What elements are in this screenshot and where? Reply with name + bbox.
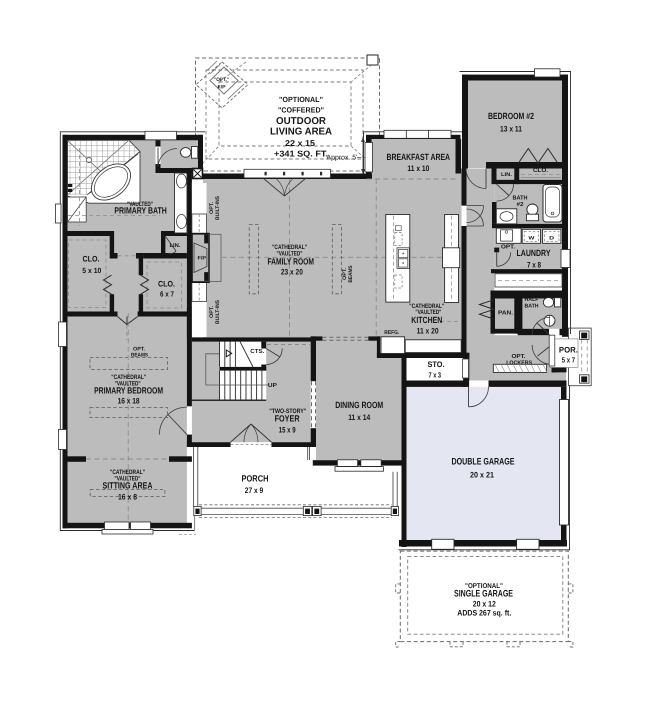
svg-text:DINING ROOM: DINING ROOM [335, 400, 383, 410]
svg-text:22 x 15: 22 x 15 [285, 138, 315, 148]
svg-text:DOUBLE GARAGE: DOUBLE GARAGE [452, 457, 515, 468]
svg-text:LIVING AREA: LIVING AREA [270, 127, 332, 138]
svg-text:11 x 20: 11 x 20 [417, 326, 439, 335]
svg-text:BUILT-INS: BUILT-INS [215, 299, 221, 324]
svg-text:REFG.: REFG. [384, 330, 399, 336]
svg-text:STO.: STO. [428, 360, 445, 369]
svg-text:OPT.: OPT. [133, 347, 146, 353]
svg-text:SINGLE GARAGE: SINGLE GARAGE [454, 589, 513, 600]
svg-text:11 x 10: 11 x 10 [407, 164, 429, 173]
svg-text:5 x 7: 5 x 7 [562, 355, 576, 364]
svg-text:LIN.: LIN. [170, 243, 181, 249]
svg-text:BUILT-INS: BUILT-INS [215, 195, 221, 220]
svg-text:5 x 10: 5 x 10 [82, 266, 101, 275]
svg-text:7 x 8: 7 x 8 [527, 260, 541, 269]
svg-text:HALF: HALF [525, 297, 540, 303]
svg-text:ADDS 267 sq. ft.: ADDS 267 sq. ft. [457, 608, 511, 617]
svg-text:BATH: BATH [513, 196, 528, 202]
svg-text:13 x 11: 13 x 11 [500, 125, 522, 134]
svg-text:23 x 20: 23 x 20 [281, 268, 303, 277]
svg-text:SITTING AREA: SITTING AREA [103, 481, 153, 491]
svg-text:11 x 14: 11 x 14 [348, 413, 370, 422]
svg-text:D: D [549, 236, 555, 242]
svg-text:PAN.: PAN. [498, 310, 513, 316]
svg-text:BATH: BATH [525, 304, 539, 310]
svg-text:OPT.: OPT. [501, 243, 515, 250]
svg-text:PRIMARY BATH: PRIMARY BATH [114, 206, 167, 216]
svg-text:POR.: POR. [559, 346, 578, 355]
svg-text:FOYER: FOYER [275, 414, 300, 424]
svg-text:CTS.: CTS. [250, 348, 264, 355]
svg-text:27 x 9: 27 x 9 [245, 486, 264, 495]
svg-text:UP: UP [268, 383, 277, 389]
svg-text:PORCH: PORCH [242, 474, 269, 484]
svg-text:+341 SQ. FT.: +341 SQ. FT. [274, 149, 328, 159]
svg-text:"COFFERED": "COFFERED" [278, 106, 324, 115]
svg-text:20 x 21: 20 x 21 [470, 471, 494, 480]
svg-text:F/P: F/P [218, 85, 227, 91]
svg-text:16 x 8: 16 x 8 [118, 492, 137, 501]
svg-text:7 x 3: 7 x 3 [429, 371, 442, 380]
svg-text:BEAMS: BEAMS [348, 265, 354, 282]
svg-text:15 x 9: 15 x 9 [279, 426, 296, 435]
svg-text:LAUNDRY: LAUNDRY [517, 248, 551, 258]
svg-text:OPT.: OPT. [512, 353, 526, 360]
svg-text:W: W [528, 236, 534, 242]
svg-text:"OPTIONAL": "OPTIONAL" [279, 95, 323, 104]
svg-text:OUTDOOR: OUTDOOR [276, 116, 327, 127]
svg-text:CLO.: CLO. [83, 254, 100, 263]
svg-text:20 x 12: 20 x 12 [473, 600, 496, 609]
svg-text:6 x 7: 6 x 7 [160, 290, 174, 299]
svg-text:16 x 18: 16 x 18 [118, 397, 140, 406]
svg-text:PRIMARY BEDROOM: PRIMARY BEDROOM [94, 385, 163, 395]
svg-text:"OPT.": "OPT." [214, 77, 230, 83]
svg-text:BEDROOM #2: BEDROOM #2 [488, 111, 534, 121]
svg-text:Approx. 5': Approx. 5' [327, 155, 358, 162]
svg-text:#2: #2 [517, 201, 524, 208]
svg-text:KITCHEN: KITCHEN [411, 315, 442, 325]
svg-text:LIN.: LIN. [501, 172, 513, 178]
svg-text:F/P: F/P [198, 256, 207, 262]
svg-text:BREAKFAST AREA: BREAKFAST AREA [387, 152, 451, 162]
svg-text:CLO.: CLO. [158, 279, 175, 288]
svg-text:FAMILY ROOM: FAMILY ROOM [267, 256, 314, 266]
svg-text:CLO.: CLO. [533, 167, 548, 174]
